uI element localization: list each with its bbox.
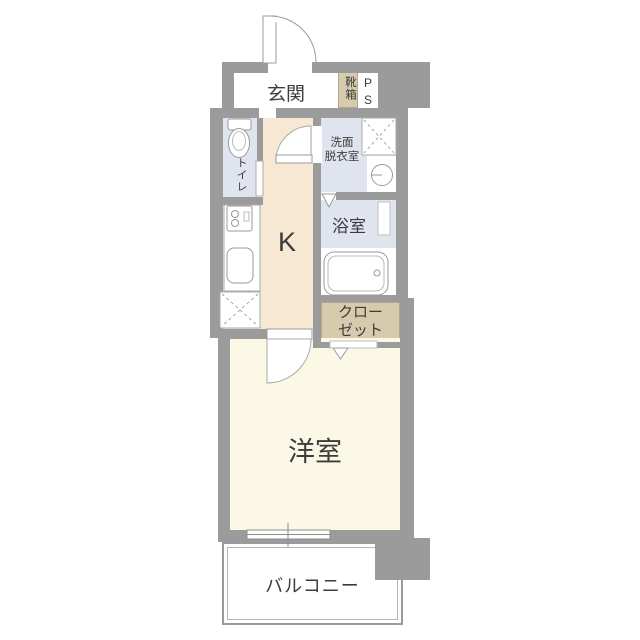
bath-door-icon [378, 202, 390, 235]
western-room-label: 洋室 [230, 430, 400, 469]
bathtub-icon [324, 252, 388, 295]
washroom-label-line1: 洗面 [319, 136, 365, 150]
bathroom-label: 浴室 [321, 212, 377, 237]
folding-door-icon [322, 194, 336, 207]
closet-label-line2: ゼット [321, 322, 400, 340]
sliding-window-icon [247, 523, 330, 547]
washroom-label: 洗面 脱衣室 [319, 136, 365, 164]
refrigerator-space-icon [220, 292, 260, 328]
balcony-label: バルコニー [222, 572, 403, 598]
folding-door-icon [330, 341, 377, 359]
kitchen-sink-icon [227, 248, 253, 283]
closet-label: クロー ゼット [321, 304, 400, 340]
toilet-door-icon [256, 161, 263, 196]
washroom-label-line2: 脱衣室 [319, 150, 365, 164]
toilet-icon [228, 119, 251, 158]
toilet-label: トイレ [233, 157, 249, 193]
pipe-space-label: PS [361, 76, 375, 110]
floor-plan: 玄関 靴箱 PS トイレ K 洗面 脱衣室 浴室 クロー ゼット 洋室 バルコニ… [0, 0, 640, 640]
washing-machine-space-icon [362, 118, 396, 155]
stove-icon [227, 206, 252, 231]
kitchen-label: K [262, 227, 312, 258]
shoebox-label: 靴箱 [342, 76, 358, 101]
genkan-label: 玄関 [234, 79, 338, 106]
wash-basin-icon [371, 165, 393, 186]
entrance-door-icon [263, 16, 316, 63]
closet-label-line1: クロー [321, 304, 400, 322]
door-swing-icon [267, 329, 312, 383]
door-swing-icon [276, 126, 322, 163]
